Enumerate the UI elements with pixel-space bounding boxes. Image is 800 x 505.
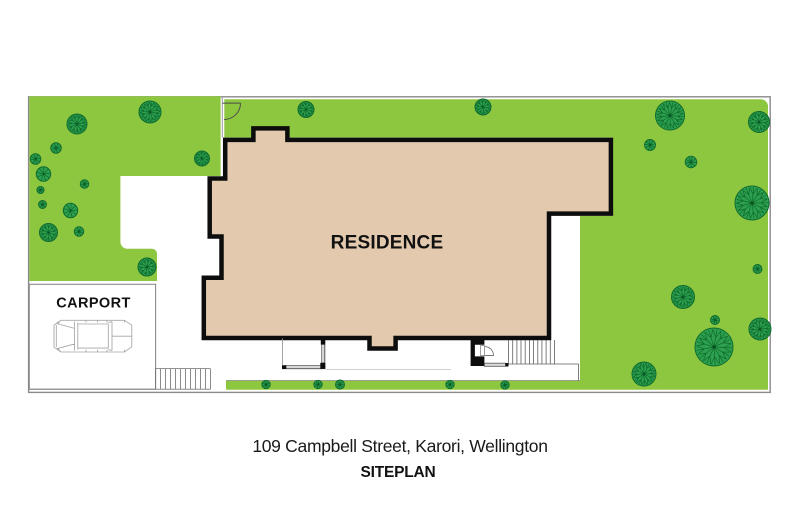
svg-text:CARPORT: CARPORT	[56, 296, 131, 312]
svg-text:RESIDENCE: RESIDENCE	[331, 233, 444, 254]
svg-text:109 Campbell Street, Karori, W: 109 Campbell Street, Karori, Wellington	[252, 436, 547, 456]
svg-text:SITEPLAN: SITEPLAN	[360, 464, 435, 481]
